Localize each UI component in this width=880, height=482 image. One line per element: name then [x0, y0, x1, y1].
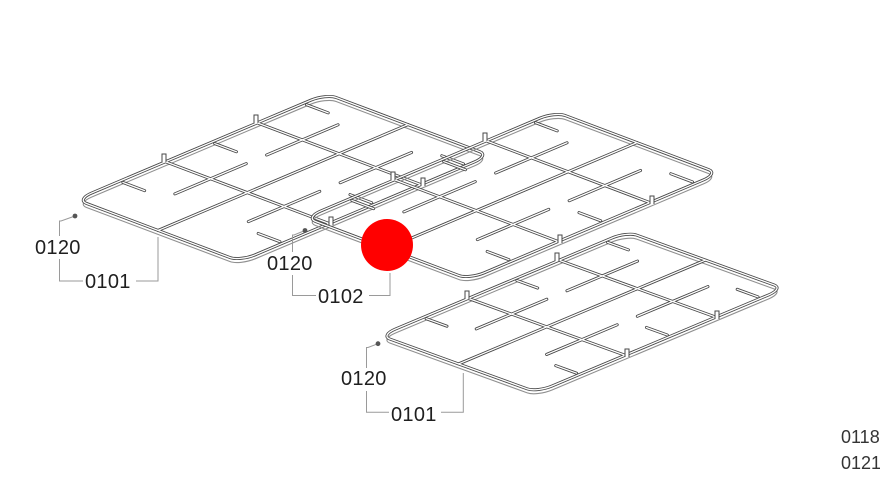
- leader-pointer-dot-left: [73, 214, 78, 219]
- callout-part-label-middle: 0102: [318, 287, 364, 307]
- edge-part-number-1: 0118: [841, 428, 880, 446]
- pan-support-grate-top-left: [76, 94, 490, 266]
- leader-pointer-dot-bottom: [376, 341, 381, 346]
- callout-clip-label-bottom: 0120: [341, 369, 387, 389]
- parts-diagram-canvas: 0120 0101 0120 0102 0120 0101 0118 0121: [0, 0, 880, 482]
- leader-pointer-dot-middle: [303, 228, 308, 233]
- callout-part-label-left: 0101: [85, 272, 131, 292]
- edge-part-number-2: 0121: [841, 454, 880, 472]
- click-indicator-dot: [361, 219, 413, 271]
- callout-part-label-bottom: 0101: [391, 405, 437, 425]
- pan-support-grate-bottom-right: [380, 232, 784, 397]
- pan-support-diagram-art: [0, 0, 880, 482]
- callout-clip-label-middle: 0120: [267, 254, 313, 274]
- callout-clip-label-left: 0120: [35, 238, 81, 258]
